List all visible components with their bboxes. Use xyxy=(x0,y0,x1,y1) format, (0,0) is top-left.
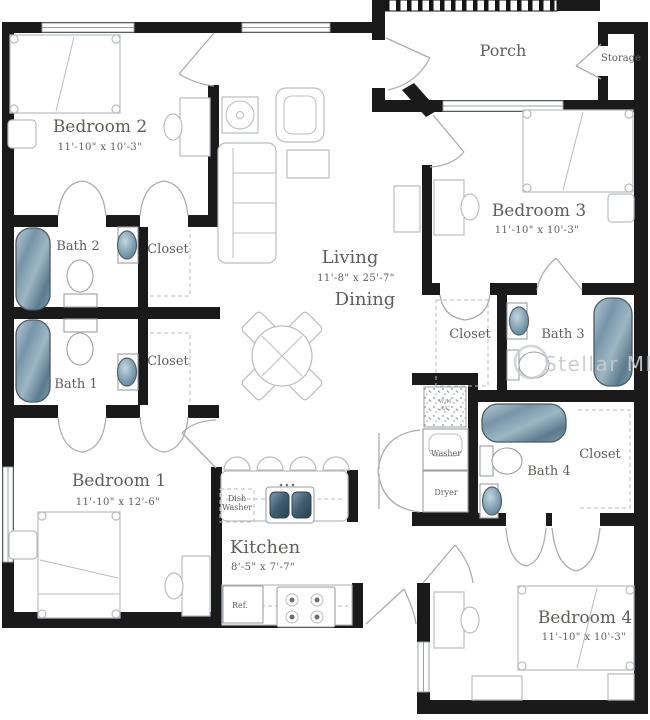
dishwasher-label-line2: Washer xyxy=(222,503,252,512)
desk-chair xyxy=(461,607,479,633)
storage-label: Storage xyxy=(601,53,641,64)
bath3-label: Bath 3 xyxy=(541,327,584,342)
bedroom1-dims: 11'-10" x 12'-6" xyxy=(76,497,160,508)
ottoman xyxy=(287,150,329,178)
floor-plan-drawing: W/H A/C Washer Dryer Bedroom 2 11'-10" x… xyxy=(0,0,650,720)
bedroom4-label: Bedroom 4 xyxy=(538,608,632,628)
media-stand xyxy=(222,97,258,133)
bedroom1-label: Bedroom 1 xyxy=(72,471,166,491)
bedroom4-dims: 11'-10" x 10'-3" xyxy=(542,632,626,643)
desk xyxy=(434,592,464,648)
dresser xyxy=(472,676,522,700)
bedroom1-furniture xyxy=(9,512,210,618)
closet-bath3-label: Closet xyxy=(449,327,491,342)
bath1-label: Bath 1 xyxy=(54,377,97,392)
nightstand xyxy=(8,120,36,148)
bath4-label: Bath 4 xyxy=(527,464,570,479)
floor-plan: W/H A/C Washer Dryer Bedroom 2 11'-10" x… xyxy=(0,0,650,720)
sink xyxy=(118,231,137,259)
window-bedroom4-left xyxy=(418,642,429,692)
kitchen-label: Kitchen xyxy=(230,537,301,558)
dining-label: Dining xyxy=(335,289,396,310)
desk-chair xyxy=(165,573,183,599)
watermark-text: Stellar MLS xyxy=(544,352,650,376)
toilet-bowl xyxy=(67,333,93,365)
desk xyxy=(434,180,464,235)
toilet-tank xyxy=(480,446,493,476)
desk xyxy=(180,98,210,156)
bed xyxy=(518,586,634,670)
refrigerator-label: Ref. xyxy=(232,601,248,610)
dishwasher-label-line1: Dish xyxy=(228,494,246,503)
kitchen-sink xyxy=(266,484,314,523)
nightstand xyxy=(608,194,634,222)
laundry: Washer Dryer xyxy=(423,429,468,512)
toilet-bowl xyxy=(492,448,522,474)
bed xyxy=(523,110,633,192)
toilet-tank xyxy=(64,319,97,332)
living-label: Living xyxy=(322,247,379,268)
water-heater-label: W/H xyxy=(439,399,452,405)
window-bedroom2-top xyxy=(42,23,134,32)
sink xyxy=(118,358,137,386)
bar-stool xyxy=(323,457,349,470)
living-dims: 11'-8" x 25'-7" xyxy=(317,273,395,284)
mechanical-closet: W/H A/C xyxy=(424,387,466,427)
bar-stool xyxy=(257,457,283,470)
closet-bedroom1-label: Closet xyxy=(147,354,189,369)
bedroom3-dims: 11'-10" x 10'-3" xyxy=(495,225,579,236)
washer-label: Washer xyxy=(431,449,461,458)
nightstand xyxy=(608,674,634,700)
closet-bath4-label: Closet xyxy=(579,447,621,462)
porch-label: Porch xyxy=(480,41,527,60)
sink xyxy=(510,307,529,335)
closet-bedroom2-label: Closet xyxy=(147,242,189,257)
bedroom2-label: Bedroom 2 xyxy=(53,117,147,137)
bathtub xyxy=(16,320,50,402)
desk-chair xyxy=(164,114,182,140)
ac-label: A/C xyxy=(439,406,450,412)
bathtub xyxy=(482,404,566,442)
hall-table xyxy=(394,186,420,232)
bedroom2-furniture xyxy=(8,35,210,156)
bar-stool xyxy=(224,457,250,470)
living-furniture xyxy=(218,88,420,401)
bath2-label: Bath 2 xyxy=(56,239,99,254)
bar-stool xyxy=(290,457,316,470)
toilet-bowl xyxy=(67,260,93,292)
sink xyxy=(483,487,502,515)
bedroom2-dims: 11'-10" x 10'-3" xyxy=(58,142,142,153)
stove xyxy=(277,587,335,627)
bedroom3-label: Bedroom 3 xyxy=(492,201,586,221)
porch-railing xyxy=(385,0,557,11)
nightstand xyxy=(9,531,37,559)
bathtub xyxy=(16,228,50,310)
bath4-fixtures xyxy=(480,404,566,518)
bed xyxy=(38,512,120,618)
dryer-label: Dryer xyxy=(434,488,457,497)
desk-chair xyxy=(461,194,479,220)
window-living-top xyxy=(242,23,330,32)
bedroom4-furniture xyxy=(434,586,634,700)
toilet-tank xyxy=(64,294,97,307)
desk xyxy=(182,556,210,616)
kitchen-dims: 8'-5" x 7'-7" xyxy=(231,562,295,573)
dining-set xyxy=(241,311,324,402)
